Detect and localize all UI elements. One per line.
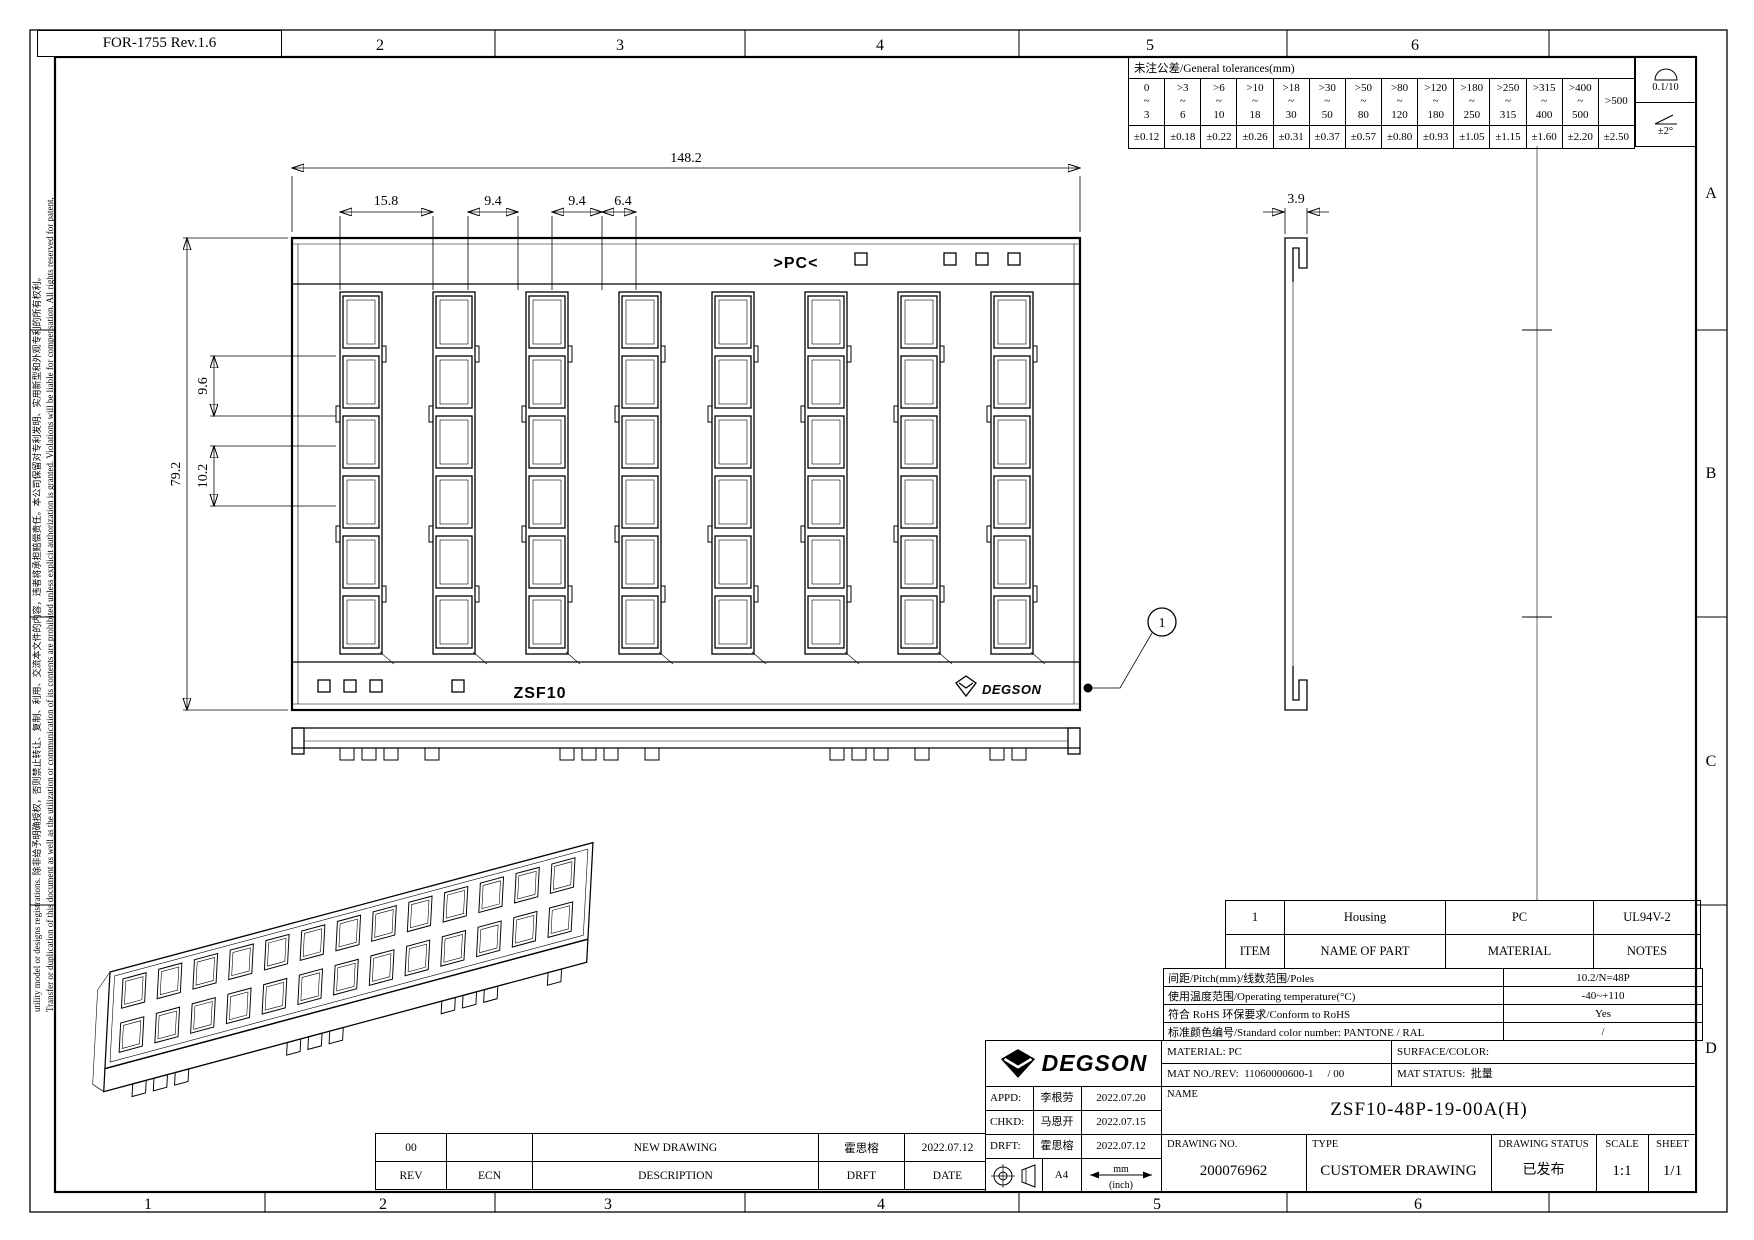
surface-color-cell: SURFACE/COLOR: [1397, 1043, 1693, 1062]
tol-value: ±0.80 [1381, 126, 1417, 149]
ecn-value [447, 1134, 533, 1162]
series-mark: ZSF10 [513, 685, 566, 702]
zone-top-5: 5 [1146, 37, 1154, 54]
slot-column [429, 292, 487, 664]
chkd-label: CHKD: [990, 1110, 1032, 1134]
spec-value: Yes [1504, 1005, 1703, 1023]
tol-value: ±0.31 [1273, 126, 1309, 149]
brand-name: DEGSON [1042, 1050, 1148, 1077]
revision-entry-row: 00 NEW DRAWING 霍思榕 2022.07.12 [376, 1134, 991, 1162]
spec-label: 符合 RoHS 环保要求/Conform to RoHS [1164, 1005, 1504, 1023]
material-value: PC [1228, 1046, 1241, 1058]
tol-range: >30~50 [1309, 79, 1345, 126]
zone-top-4: 4 [876, 37, 884, 54]
part-item: 1 [1226, 901, 1285, 935]
tol-range: >250~315 [1490, 79, 1526, 126]
tol-range: >80~120 [1381, 79, 1417, 126]
tol-range: >120~180 [1418, 79, 1454, 126]
form-reference: FOR-1755 Rev.1.6 [103, 35, 217, 52]
zone-top-6: 6 [1411, 37, 1419, 54]
parts-table: 1 Housing PC UL94V-2 ITEM NAME OF PART M… [1225, 900, 1701, 969]
dim-overall-width: 148.2 [670, 151, 702, 166]
isometric-view [91, 843, 592, 1108]
bottom-profile-view [292, 728, 1080, 760]
tol-value: ±0.26 [1237, 126, 1273, 149]
zone-bottom-5: 5 [1153, 1196, 1161, 1213]
title-block: DEGSON APPD: 李根劳 2022.07.20 CHKD: 马恩开 20… [985, 1040, 1696, 1192]
rev-description: NEW DRAWING [533, 1134, 819, 1162]
tol-value: ±0.18 [1165, 126, 1201, 149]
tol-range: >6~10 [1201, 79, 1237, 126]
material-cell: MATERIAL: PC [1167, 1043, 1387, 1062]
rev-drft: 霍思榕 [819, 1134, 905, 1162]
zone-top-2: 2 [376, 37, 384, 54]
disclaimer-line-inner: Transfer or duplication of this document… [44, 72, 57, 1012]
drawing-no-label: DRAWING NO. [1167, 1137, 1306, 1152]
spec-label: 标准颜色编号/Standard color number: PANTONE / … [1164, 1023, 1504, 1041]
rev-date: 2022.07.12 [905, 1134, 991, 1162]
spec-label: 使用温度范围/Operating temperature(°C) [1164, 987, 1504, 1005]
spec-label: 间距/Pitch(mm)/线数范围/Poles [1164, 969, 1504, 987]
top-view: >PC< ZSF10 DEGSON [292, 238, 1093, 710]
disclaimer-line-outer: utility model or designs registrations. … [31, 72, 44, 1012]
drawing-status-label: DRAWING STATUS [1491, 1137, 1596, 1152]
header-date: DATE [905, 1162, 991, 1190]
drft-name: 霍思榕 [1033, 1134, 1081, 1158]
chkd-date: 2022.07.15 [1081, 1110, 1161, 1134]
header-drft: DRFT [819, 1162, 905, 1190]
mat-status-cell: MAT STATUS: 批量 [1397, 1065, 1693, 1084]
third-angle-projection-icon [990, 1162, 1038, 1190]
spec-row: 标准颜色编号/Standard color number: PANTONE / … [1164, 1023, 1703, 1041]
tol-value: ±0.93 [1418, 126, 1454, 149]
balloon-callout: 1 [1092, 608, 1176, 688]
part-name: Housing [1285, 901, 1446, 935]
degson-brand-mark: DEGSON [982, 682, 1041, 697]
zone-right-b: B [1706, 465, 1717, 482]
svg-text:(inch): (inch) [1109, 1180, 1133, 1191]
zone-bottom-2: 2 [379, 1196, 387, 1213]
drawing-no-value: 200076962 [1161, 1153, 1306, 1189]
tol-value: ±1.60 [1526, 126, 1562, 149]
balloon-number: 1 [1159, 616, 1166, 631]
header-ecn: ECN [447, 1162, 533, 1190]
mat-no-cell: MAT NO./REV: 11060000600-1 / 00 [1167, 1065, 1389, 1084]
header-item: ITEM [1226, 935, 1285, 969]
part-material: PC [1446, 901, 1594, 935]
spec-table: 间距/Pitch(mm)/线数范围/Poles 10.2/N=48P 使用温度范… [1163, 968, 1703, 1041]
tol-value-over-500: ±2.50 [1598, 126, 1634, 149]
spec-row: 符合 RoHS 环保要求/Conform to RoHS Yes [1164, 1005, 1703, 1023]
tol-range: >180~250 [1454, 79, 1490, 126]
table-header-row: ITEM NAME OF PART MATERIAL NOTES [1226, 935, 1701, 969]
tol-range: >50~80 [1345, 79, 1381, 126]
header-material: MATERIAL [1446, 935, 1594, 969]
degson-logo-mark [956, 676, 976, 696]
spec-row: 间距/Pitch(mm)/线数范围/Poles 10.2/N=48P [1164, 969, 1703, 987]
paper-size: A4 [1042, 1158, 1081, 1193]
angle-tolerance-spec: ±2° [1636, 102, 1695, 147]
appd-label: APPD: [990, 1086, 1032, 1110]
revision-header-row: REV ECN DESCRIPTION DRFT DATE [376, 1162, 991, 1190]
type-value: CUSTOMER DRAWING [1306, 1153, 1491, 1189]
tol-value: ±0.37 [1309, 126, 1345, 149]
tol-range: 0~3 [1129, 79, 1165, 126]
zone-top-3: 3 [616, 37, 624, 54]
zone-bottom-3: 3 [604, 1196, 612, 1213]
dim-overall-height: 79.2 [169, 462, 184, 487]
tol-value: ±1.05 [1454, 126, 1490, 149]
scale-label: SCALE [1596, 1137, 1648, 1152]
drft-date: 2022.07.12 [1081, 1134, 1161, 1158]
units-arrow-icon: mm (inch) [1086, 1161, 1156, 1191]
sheet-value: 1/1 [1648, 1153, 1697, 1189]
dim-side-thickness: 3.9 [1287, 192, 1305, 207]
dim-slot-h2: 10.2 [196, 464, 211, 489]
tol-range: >18~30 [1273, 79, 1309, 126]
sheet-label: SHEET [1648, 1137, 1697, 1152]
tol-value: ±2.20 [1562, 126, 1598, 149]
part-notes: UL94V-2 [1594, 901, 1701, 935]
svg-text:mm: mm [1113, 1164, 1129, 1175]
angle-icon [1654, 113, 1678, 125]
zone-bottom-4: 4 [877, 1196, 885, 1213]
flatness-spec: 0.1/10 [1636, 58, 1695, 102]
drawing-status-value: 已发布 [1491, 1153, 1596, 1189]
degson-logo: DEGSON [986, 1041, 1161, 1086]
units-cell: mm (inch) [1081, 1158, 1161, 1193]
dim-slot-width: 6.4 [614, 194, 632, 209]
tol-value: ±0.22 [1201, 126, 1237, 149]
flatness-icon [1653, 68, 1679, 81]
mat-no-value: 11060000600-1 [1244, 1068, 1313, 1080]
spec-value: 10.2/N=48P [1504, 969, 1703, 987]
tol-value: ±0.12 [1129, 126, 1165, 149]
header-description: DESCRIPTION [533, 1162, 819, 1190]
tol-range: >10~18 [1237, 79, 1273, 126]
degson-logo-icon [1000, 1048, 1036, 1079]
balloon-leader-dot [1084, 684, 1093, 693]
slot-column [336, 292, 394, 664]
zone-right-d: D [1705, 1040, 1717, 1057]
slot-column [894, 292, 952, 664]
appd-name: 李根劳 [1033, 1086, 1081, 1110]
dim-pitch-group: 15.8 [374, 194, 399, 209]
chkd-name: 马恩开 [1033, 1110, 1081, 1134]
slot-column [801, 292, 859, 664]
zone-bottom-1: 1 [144, 1196, 152, 1213]
tolerance-symbol-box: 0.1/10 ±2° [1635, 57, 1696, 147]
table-row: 1 Housing PC UL94V-2 [1226, 901, 1701, 935]
zone-right-a: A [1705, 185, 1717, 202]
zone-bottom-6: 6 [1414, 1196, 1422, 1213]
scale-value: 1:1 [1596, 1153, 1648, 1189]
slot-column [708, 292, 766, 664]
dim-pitch-1: 9.4 [484, 194, 502, 209]
dim-slot-h1: 9.6 [196, 377, 211, 395]
tol-range: >400~500 [1562, 79, 1598, 126]
slot-column [522, 292, 580, 664]
spec-value: -40~+110 [1504, 987, 1703, 1005]
revision-table: 00 NEW DRAWING 霍思榕 2022.07.12 REV ECN DE… [375, 1133, 991, 1190]
general-tolerance-table: 未注公差/General tolerances(mm) 0~3 >3~6 >6~… [1128, 57, 1635, 149]
dimension-lines: 148.2 15.8 9.4 9.4 6.4 79.2 9.6 [169, 151, 1080, 710]
pc-material-mark: >PC< [774, 255, 819, 272]
mat-status-value: 批量 [1471, 1068, 1493, 1080]
tol-range: >3~6 [1165, 79, 1201, 126]
zone-right-c: C [1706, 753, 1717, 770]
form-reference-box: FOR-1755 Rev.1.6 [37, 30, 282, 57]
part-name: ZSF10-48P-19-00A(H) [1161, 1086, 1697, 1134]
spec-row: 使用温度范围/Operating temperature(°C) -40~+11… [1164, 987, 1703, 1005]
header-rev: REV [376, 1162, 447, 1190]
side-view: 3.9 [1263, 192, 1329, 710]
drawing-sheet: 2 3 4 5 6 1 2 3 4 5 6 A B C D [0, 0, 1754, 1240]
drft-label: DRFT: [990, 1134, 1032, 1158]
spec-value: / [1504, 1023, 1703, 1041]
type-label: TYPE [1312, 1137, 1487, 1152]
margin-disclaimer: utility model or designs registrations. … [31, 1012, 971, 1038]
tol-value: ±0.57 [1345, 126, 1381, 149]
tol-range-over-500: >500 [1598, 79, 1634, 126]
projection-symbol [986, 1158, 1042, 1193]
header-notes: NOTES [1594, 935, 1701, 969]
tol-range: >315~400 [1526, 79, 1562, 126]
tol-value: ±1.15 [1490, 126, 1526, 149]
tolerance-title: 未注公差/General tolerances(mm) [1129, 58, 1635, 79]
mat-rev-value: / 00 [1327, 1068, 1344, 1080]
slot-column [987, 292, 1045, 664]
dim-pitch-2: 9.4 [568, 194, 586, 209]
rev-value: 00 [376, 1134, 447, 1162]
appd-date: 2022.07.20 [1081, 1086, 1161, 1110]
slot-column [615, 292, 673, 664]
header-name: NAME OF PART [1285, 935, 1446, 969]
